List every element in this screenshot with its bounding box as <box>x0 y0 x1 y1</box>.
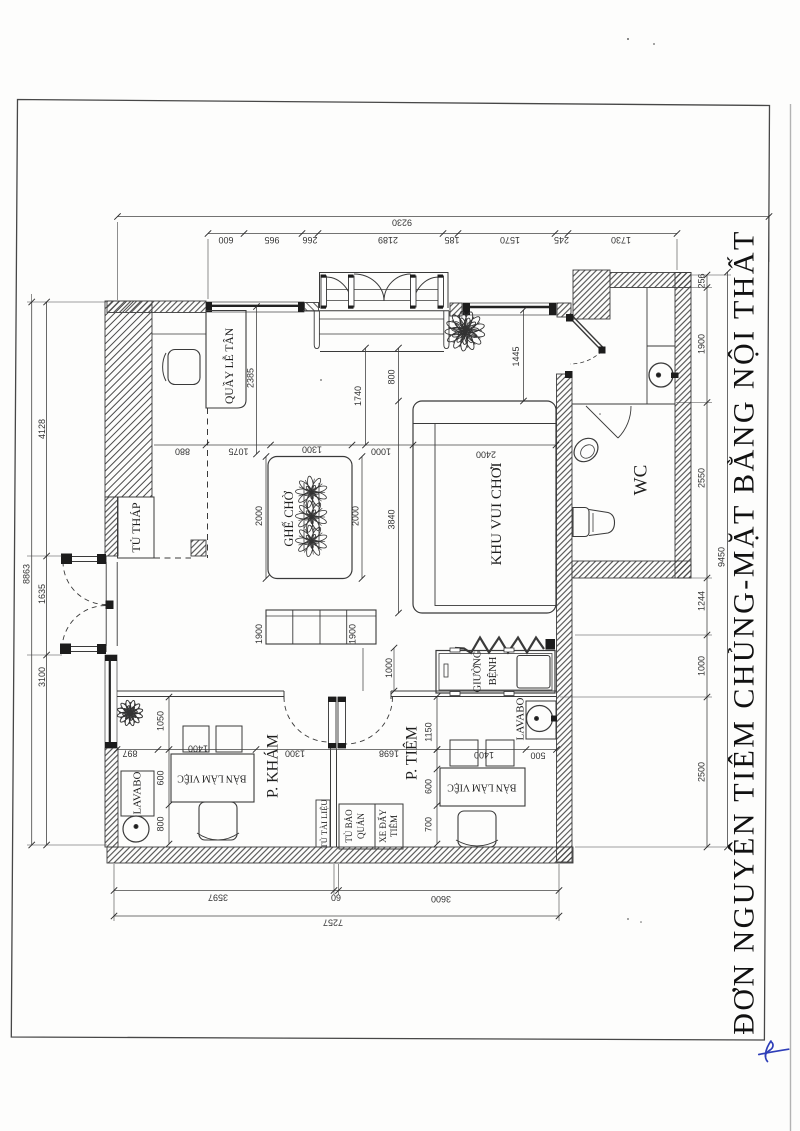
svg-text:GHẾ CHỜ: GHẾ CHỜ <box>281 490 296 546</box>
svg-text:600: 600 <box>424 779 434 794</box>
svg-text:500: 500 <box>530 751 545 761</box>
svg-text:2550: 2550 <box>697 468 707 488</box>
svg-text:3600: 3600 <box>431 894 451 904</box>
svg-text:GIƯỜNG: GIƯỜNG <box>472 650 484 692</box>
svg-text:700: 700 <box>424 817 434 832</box>
svg-text:1635: 1635 <box>37 584 47 604</box>
svg-text:1400: 1400 <box>188 744 208 754</box>
svg-text:245: 245 <box>554 235 569 245</box>
svg-text:TỦ TÀI LIỆU: TỦ TÀI LIỆU <box>319 800 329 849</box>
svg-text:1000: 1000 <box>384 658 394 678</box>
svg-text:600: 600 <box>218 235 233 245</box>
svg-text:1050: 1050 <box>156 711 166 731</box>
svg-text:897: 897 <box>122 749 137 759</box>
svg-text:1900: 1900 <box>697 334 707 354</box>
svg-text:7257: 7257 <box>323 918 343 928</box>
svg-text:1900: 1900 <box>254 624 264 644</box>
svg-text:185: 185 <box>444 235 459 245</box>
svg-text:800: 800 <box>387 369 397 384</box>
svg-text:1900: 1900 <box>348 624 358 644</box>
svg-text:WC: WC <box>631 465 652 496</box>
svg-text:800: 800 <box>156 816 166 831</box>
svg-text:256: 256 <box>697 273 707 288</box>
svg-text:QUẦY LỄ TÂN: QUẦY LỄ TÂN <box>221 327 236 404</box>
svg-text:QUẢN: QUẢN <box>356 813 366 839</box>
svg-text:965: 965 <box>264 235 279 245</box>
svg-text:1000: 1000 <box>371 447 391 457</box>
svg-text:2000: 2000 <box>254 506 264 526</box>
svg-text:XE ĐẨY: XE ĐẨY <box>378 809 388 843</box>
svg-text:266: 266 <box>302 235 317 245</box>
svg-text:KHU VUI CHƠI: KHU VUI CHƠI <box>489 462 505 565</box>
svg-text:1730: 1730 <box>611 235 631 245</box>
svg-text:2400: 2400 <box>476 450 496 460</box>
svg-text:1075: 1075 <box>228 447 248 457</box>
svg-text:1698: 1698 <box>379 749 399 759</box>
svg-text:TỦ THÁP: TỦ THÁP <box>129 502 143 552</box>
svg-text:1300: 1300 <box>285 749 305 759</box>
svg-text:3840: 3840 <box>387 509 397 529</box>
svg-text:4128: 4128 <box>37 419 47 439</box>
svg-text:1740: 1740 <box>353 386 363 406</box>
svg-text:1000: 1000 <box>697 656 707 676</box>
svg-text:3100: 3100 <box>37 667 47 687</box>
svg-text:1244: 1244 <box>697 591 707 611</box>
svg-text:LAVABO: LAVABO <box>515 697 527 740</box>
svg-text:1400: 1400 <box>474 750 494 760</box>
svg-text:P. TIÊM: P. TIÊM <box>402 726 421 780</box>
svg-text:TIÊM: TIÊM <box>389 815 399 837</box>
svg-text:880: 880 <box>175 447 190 457</box>
svg-text:1570: 1570 <box>500 235 520 245</box>
svg-text:9450: 9450 <box>717 547 727 567</box>
svg-text:9230: 9230 <box>392 218 412 228</box>
svg-text:TỦ BẢO: TỦ BẢO <box>344 809 354 843</box>
svg-text:1300: 1300 <box>302 445 322 455</box>
svg-text:2189: 2189 <box>378 235 398 245</box>
svg-text:2000: 2000 <box>351 506 361 526</box>
svg-text:BỆNH: BỆNH <box>487 656 499 685</box>
svg-text:P. KHÁM: P. KHÁM <box>263 734 282 798</box>
svg-text:BÀN LÀM VIỆC: BÀN LÀM VIỆC <box>177 773 247 785</box>
svg-text:3597: 3597 <box>208 893 228 903</box>
svg-text:1445: 1445 <box>511 346 521 366</box>
svg-text:600: 600 <box>156 770 166 785</box>
svg-text:8863: 8863 <box>22 564 32 584</box>
svg-text:2385: 2385 <box>246 368 256 388</box>
svg-text:LAVABO: LAVABO <box>132 771 144 814</box>
svg-text:BÀN LÀM VIỆC: BÀN LÀM VIỆC <box>447 782 517 794</box>
svg-text:ĐƠN NGUYÊN TIÊM CHỦNG-MẶT BẰNG: ĐƠN NGUYÊN TIÊM CHỦNG-MẶT BẰNG NỘI THẤT <box>727 229 761 1035</box>
svg-text:60: 60 <box>331 893 341 903</box>
svg-text:2500: 2500 <box>697 762 707 782</box>
svg-text:1150: 1150 <box>424 722 434 741</box>
